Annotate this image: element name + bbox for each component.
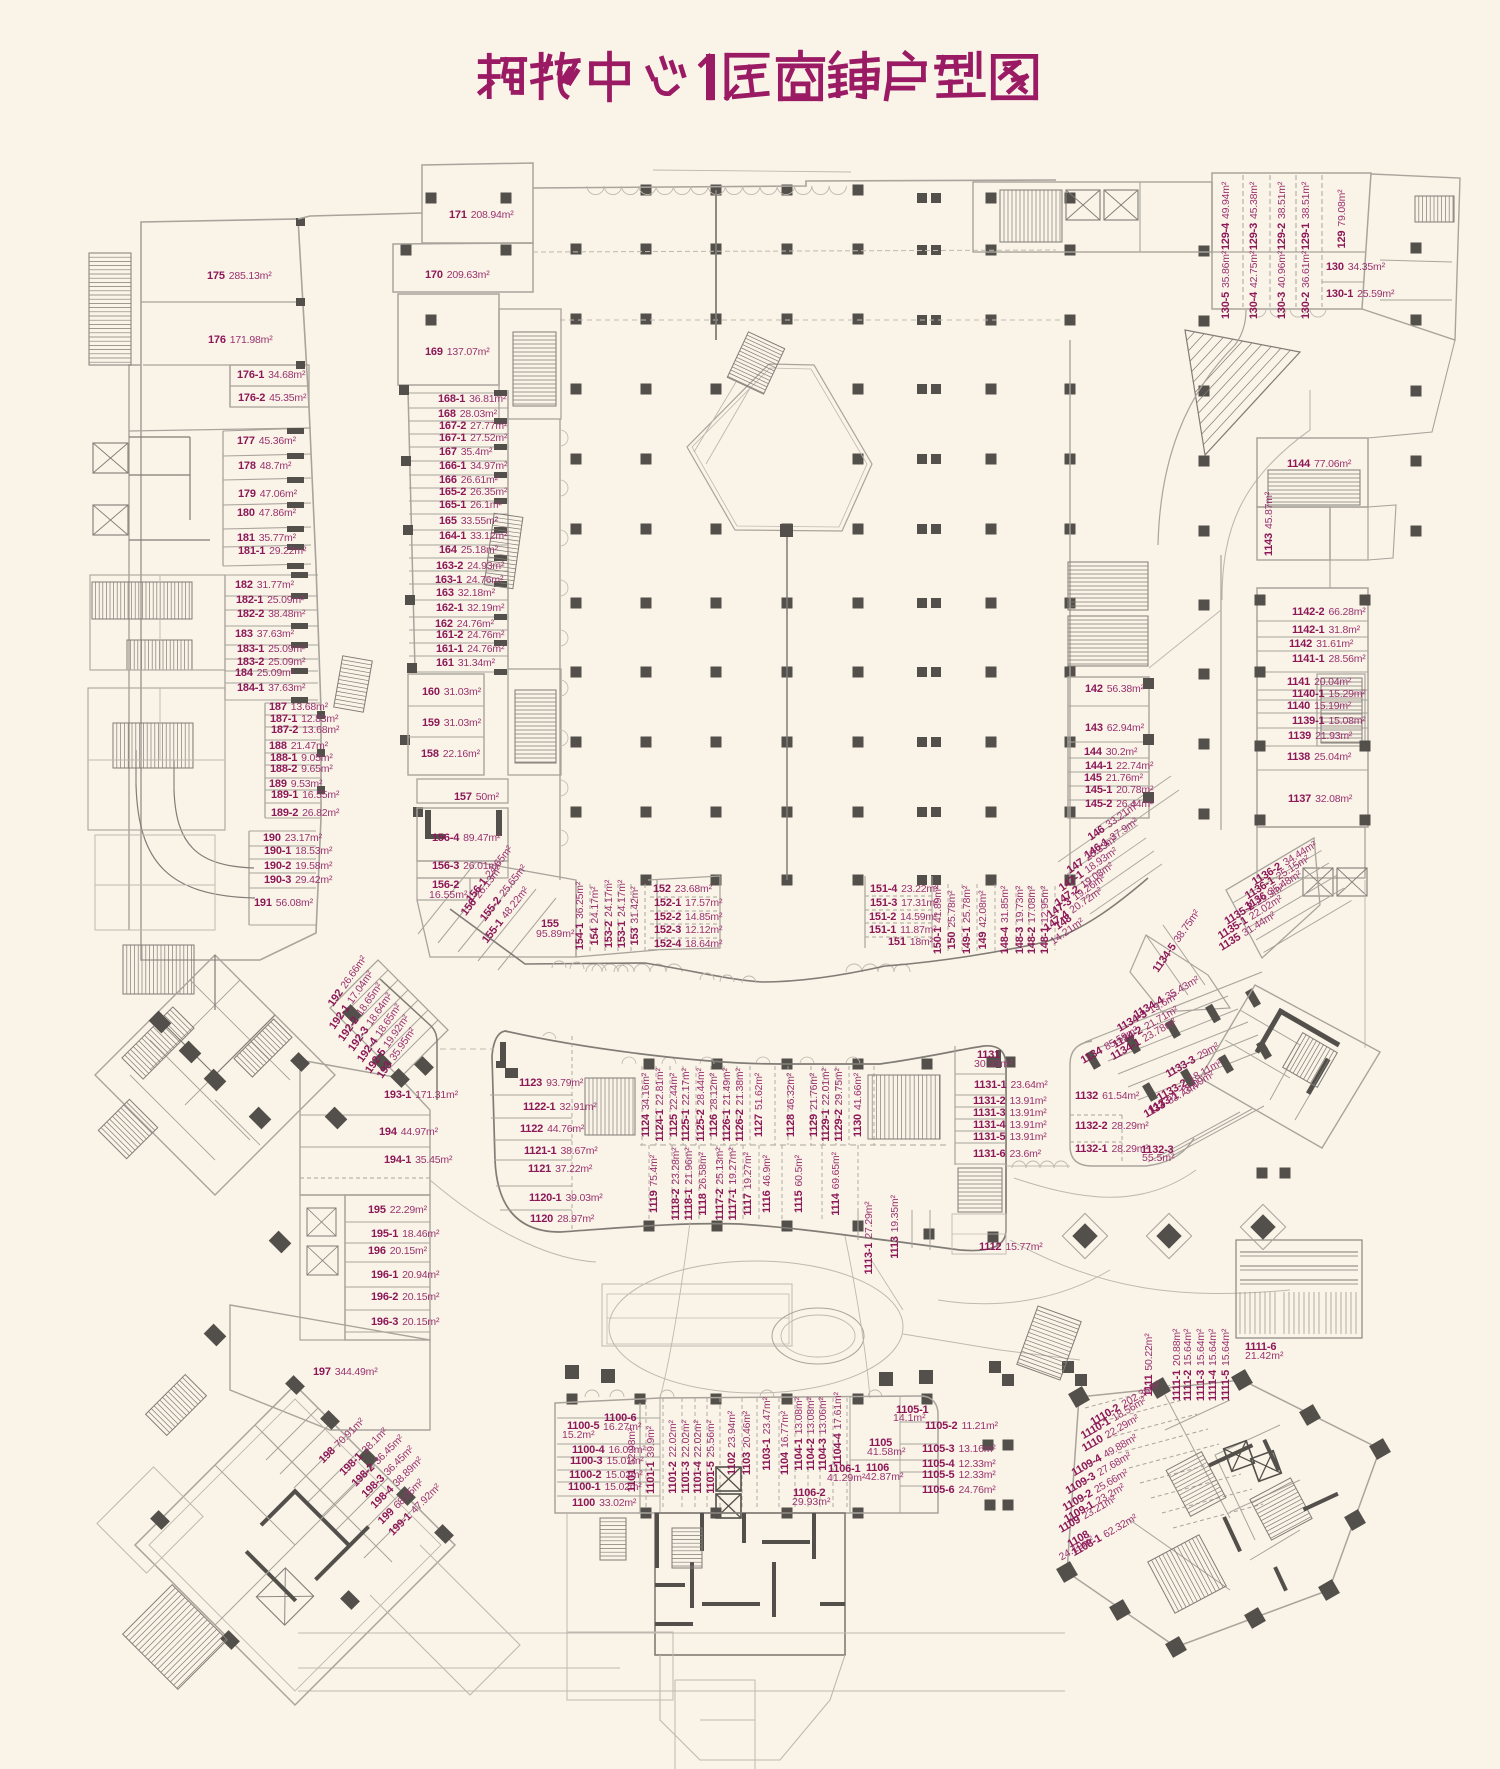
svg-text:176171.98m²: 176171.98m²	[208, 334, 273, 346]
svg-text:41.29m²: 41.29m²	[827, 1472, 866, 1484]
svg-text:1104-113.08m²: 1104-113.08m²	[793, 1397, 805, 1471]
svg-text:189-226.82m²: 189-226.82m²	[271, 807, 340, 819]
svg-text:113041.66m²: 113041.66m²	[852, 1072, 864, 1137]
svg-text:165-126.1m²: 165-126.1m²	[439, 499, 502, 511]
svg-text:1117-225.13m²: 1117-225.13m²	[714, 1147, 726, 1221]
svg-text:1101-525.56m²: 1101-525.56m²	[705, 1420, 717, 1494]
svg-text:110223.94m²: 110223.94m²	[726, 1410, 738, 1475]
svg-text:18821.47m²: 18821.47m²	[269, 740, 329, 752]
svg-text:19620.15m²: 19620.15m²	[368, 1245, 428, 1257]
svg-text:181-129.22m²: 181-129.22m²	[238, 545, 307, 557]
svg-text:110152.98m²: 110152.98m²	[626, 1427, 638, 1492]
svg-text:168-136.81m²: 168-136.81m²	[438, 393, 507, 405]
svg-text:163-224.93m²: 163-224.93m²	[436, 560, 505, 572]
svg-text:196-120.94m²: 196-120.94m²	[371, 1269, 440, 1281]
svg-text:1125-228.44m²: 1125-228.44m²	[695, 1068, 707, 1142]
svg-text:18337.63m²: 18337.63m²	[235, 628, 295, 640]
svg-text:167-127.52m²: 167-127.52m²	[439, 432, 508, 444]
svg-text:111646.9m²: 111646.9m²	[761, 1154, 773, 1213]
svg-text:149-125.78m²: 149-125.78m²	[961, 885, 973, 954]
svg-text:190-118.53m²: 190-118.53m²	[264, 845, 333, 857]
svg-text:112522.44m²: 112522.44m²	[668, 1072, 680, 1137]
svg-text:14942.08m²: 14942.08m²	[977, 890, 989, 950]
svg-text:111975.4m²: 111975.4m²	[648, 1154, 660, 1213]
svg-text:14430.2m²: 14430.2m²	[1084, 746, 1138, 758]
svg-text:112434.16m²: 112434.16m²	[640, 1072, 652, 1137]
svg-text:1101-322.02m²: 1101-322.02m²	[680, 1420, 692, 1494]
svg-text:184-137.63m²: 184-137.63m²	[237, 682, 306, 694]
svg-text:41.58m²: 41.58m²	[867, 1446, 906, 1458]
svg-text:175285.13m²: 175285.13m²	[207, 270, 272, 282]
svg-text:169137.07m²: 169137.07m²	[425, 346, 490, 358]
svg-text:14362.94m²: 14362.94m²	[1085, 722, 1145, 734]
svg-text:1118-223.28m²: 1118-223.28m²	[670, 1147, 682, 1221]
svg-text:1118-121.96m²: 1118-121.96m²	[683, 1147, 695, 1221]
svg-text:190-329.42m²: 190-329.42m²	[264, 874, 333, 886]
svg-text:114345.87m²: 114345.87m²	[1263, 491, 1275, 556]
svg-text:1105-512.33m²: 1105-512.33m²	[922, 1469, 996, 1481]
svg-text:196-320.15m²: 196-320.15m²	[371, 1316, 440, 1328]
svg-text:148-217.08m²: 148-217.08m²	[1026, 885, 1038, 954]
svg-text:15424.17m²: 15424.17m²	[589, 886, 601, 946]
svg-text:183-125.09m²: 183-125.09m²	[237, 643, 306, 655]
svg-text:130-125.59m²: 130-125.59m²	[1326, 288, 1395, 300]
svg-text:144-122.74m²: 144-122.74m²	[1085, 760, 1154, 772]
svg-text:130-442.75m²: 130-442.75m²	[1248, 250, 1260, 319]
svg-text:15331.42m²: 15331.42m²	[629, 886, 641, 946]
svg-text:165-226.35m²: 165-226.35m²	[439, 486, 508, 498]
svg-text:194-135.45m²: 194-135.45m²	[384, 1154, 453, 1166]
svg-text:95.89m²: 95.89m²	[536, 928, 575, 940]
svg-text:152-214.85m²: 152-214.85m²	[654, 911, 723, 923]
svg-text:176-245.35m²: 176-245.35m²	[238, 392, 307, 404]
svg-text:13034.35m²: 13034.35m²	[1326, 261, 1386, 273]
svg-text:152-312.12m²: 152-312.12m²	[654, 924, 723, 936]
svg-text:19444.97m²: 19444.97m²	[379, 1126, 439, 1138]
svg-text:1113-127.29m²: 1113-127.29m²	[863, 1201, 875, 1275]
svg-text:129-345.38m²: 129-345.38m²	[1248, 181, 1260, 250]
svg-text:151-214.59m²: 151-214.59m²	[869, 911, 938, 923]
svg-text:1104-313.06m²: 1104-313.06m²	[817, 1397, 829, 1471]
svg-text:14.1m²: 14.1m²	[893, 1412, 926, 1424]
svg-text:1111-415.64m²: 1111-415.64m²	[1207, 1328, 1219, 1401]
svg-text:110320.46m²: 110320.46m²	[741, 1410, 753, 1475]
svg-text:145-120.78m²: 145-120.78m²	[1085, 784, 1154, 796]
svg-text:1121-138.67m²: 1121-138.67m²	[524, 1145, 598, 1157]
svg-text:15931.03m²: 15931.03m²	[422, 717, 482, 729]
svg-text:1101-422.02m²: 1101-422.02m²	[692, 1420, 704, 1494]
svg-text:18425.09m²: 18425.09m²	[235, 667, 295, 679]
svg-text:196-220.15m²: 196-220.15m²	[371, 1291, 440, 1303]
svg-text:151-111.87m²: 151-111.87m²	[869, 924, 937, 936]
svg-text:15223.68m²: 15223.68m²	[653, 883, 713, 895]
svg-text:30.93m²: 30.93m²	[974, 1058, 1013, 1070]
svg-text:151-423.22m²: 151-423.22m²	[870, 883, 939, 895]
svg-text:18713.68m²: 18713.68m²	[269, 701, 329, 713]
svg-text:1131-313.91m²: 1131-313.91m²	[973, 1107, 1047, 1119]
svg-text:19522.29m²: 19522.29m²	[368, 1204, 428, 1216]
svg-text:1117-119.27m²: 1117-119.27m²	[727, 1147, 739, 1221]
svg-text:111469.65m²: 111469.65m²	[830, 1152, 842, 1216]
svg-text:18047.86m²: 18047.86m²	[237, 507, 297, 519]
svg-text:129-138.51m²: 129-138.51m²	[1300, 181, 1312, 250]
svg-text:1140-115.29m²: 1140-115.29m²	[1292, 688, 1366, 700]
svg-text:1105-624.76m²: 1105-624.76m²	[922, 1484, 996, 1496]
svg-text:1132-228.29m²: 1132-228.29m²	[1075, 1120, 1149, 1132]
svg-text:42.87m²: 42.87m²	[865, 1471, 904, 1483]
svg-text:154-136.25m²: 154-136.25m²	[574, 881, 586, 950]
svg-text:113825.04m²: 113825.04m²	[1287, 751, 1352, 763]
svg-text:19023.17m²: 19023.17m²	[263, 832, 323, 844]
svg-text:113921.93m²: 113921.93m²	[1288, 730, 1353, 742]
svg-text:112028.97m²: 112028.97m²	[530, 1213, 595, 1225]
svg-text:14521.76m²: 14521.76m²	[1084, 772, 1144, 784]
svg-text:111215.77m²: 111215.77m²	[979, 1241, 1043, 1253]
svg-text:189-116.55m²: 189-116.55m²	[271, 789, 340, 801]
svg-text:18135.77m²: 18135.77m²	[237, 532, 297, 544]
svg-text:16735.4m²: 16735.4m²	[439, 446, 493, 458]
svg-text:16031.03m²: 16031.03m²	[422, 686, 482, 698]
svg-text:1122-132.91m²: 1122-132.91m²	[523, 1101, 597, 1113]
svg-text:1131-513.91m²: 1131-513.91m²	[973, 1131, 1047, 1143]
svg-text:1111-515.64m²: 1111-515.64m²	[1220, 1328, 1232, 1401]
svg-text:161-224.76m²: 161-224.76m²	[436, 629, 505, 641]
svg-text:17848.7m²: 17848.7m²	[238, 460, 292, 472]
svg-text:1103-123.47m²: 1103-123.47m²	[761, 1397, 773, 1471]
svg-text:15.2m²: 15.2m²	[562, 1429, 595, 1441]
svg-text:110033.02m²: 110033.02m²	[572, 1497, 637, 1509]
svg-text:195-118.46m²: 195-118.46m²	[371, 1228, 440, 1240]
svg-text:16626.61m²: 16626.61m²	[439, 474, 499, 486]
svg-text:112921.76m²: 112921.76m²	[808, 1072, 820, 1137]
svg-text:1125-122.17m²: 1125-122.17m²	[680, 1068, 692, 1142]
svg-text:176-134.68m²: 176-134.68m²	[237, 369, 306, 381]
svg-text:1111-215.64m²: 1111-215.64m²	[1182, 1328, 1194, 1401]
svg-text:1104-213.08m²: 1104-213.08m²	[805, 1397, 817, 1471]
svg-text:193-1171.31m²: 193-1171.31m²	[384, 1089, 459, 1101]
svg-text:55.5m²: 55.5m²	[1142, 1152, 1175, 1164]
svg-text:167-227.77m²: 167-227.77m²	[439, 420, 508, 432]
svg-text:1129-229.75m²: 1129-229.75m²	[833, 1068, 845, 1142]
svg-text:114231.61m²: 114231.61m²	[1289, 638, 1354, 650]
svg-text:148-319.73m²: 148-319.73m²	[1014, 885, 1026, 954]
svg-text:111719.27m²: 111719.27m²	[742, 1152, 754, 1216]
svg-text:16828.03m²: 16828.03m²	[438, 408, 498, 420]
svg-text:1139-115.08m²: 1139-115.08m²	[1292, 715, 1366, 727]
svg-text:197344.49m²: 197344.49m²	[313, 1366, 378, 1378]
svg-text:182-238.48m²: 182-238.48m²	[237, 608, 306, 620]
svg-text:1120-139.03m²: 1120-139.03m²	[529, 1192, 603, 1204]
svg-text:19156.08m²: 19156.08m²	[254, 897, 314, 909]
svg-text:170209.63m²: 170209.63m²	[425, 269, 490, 281]
svg-text:15025.78m²: 15025.78m²	[946, 890, 958, 950]
svg-text:1126-221.38m²: 1126-221.38m²	[734, 1068, 746, 1142]
svg-text:148-431.85m²: 148-431.85m²	[999, 885, 1011, 954]
svg-text:113261.54m²: 113261.54m²	[1075, 1090, 1140, 1102]
svg-text:129-238.51m²: 129-238.51m²	[1276, 181, 1288, 250]
svg-text:130-535.86m²: 130-535.86m²	[1220, 250, 1232, 319]
svg-text:16533.55m²: 16533.55m²	[439, 515, 499, 527]
svg-text:114015.19m²: 114015.19m²	[1287, 700, 1352, 712]
svg-text:153-224.17m²: 153-224.17m²	[603, 879, 615, 948]
svg-text:112751.62m²: 112751.62m²	[753, 1072, 765, 1137]
svg-text:171208.94m²: 171208.94m²	[449, 209, 514, 221]
svg-text:16131.34m²: 16131.34m²	[436, 657, 496, 669]
svg-text:12979.08m²: 12979.08m²	[1336, 189, 1348, 249]
svg-text:145-226.44m²: 145-226.44m²	[1085, 798, 1154, 810]
svg-text:190-219.58m²: 190-219.58m²	[264, 860, 333, 872]
svg-text:188-29.65m²: 188-29.65m²	[270, 763, 333, 775]
svg-text:152-117.57m²: 152-117.57m²	[654, 897, 723, 909]
svg-text:111319.35m²: 111319.35m²	[889, 1195, 901, 1259]
svg-text:164-133.12m²: 164-133.12m²	[439, 530, 508, 542]
svg-text:111826.58m²: 111826.58m²	[697, 1152, 709, 1216]
svg-text:110416.77m²: 110416.77m²	[779, 1410, 791, 1475]
svg-text:14256.38m²: 14256.38m²	[1085, 683, 1145, 695]
svg-text:16332.18m²: 16332.18m²	[436, 587, 496, 599]
svg-text:112137.22m²: 112137.22m²	[528, 1163, 593, 1175]
svg-text:16.55m²: 16.55m²	[429, 889, 468, 901]
svg-text:150-141.89m²: 150-141.89m²	[932, 885, 944, 954]
svg-text:1131-213.91m²: 1131-213.91m²	[973, 1095, 1047, 1107]
svg-text:1141-128.56m²: 1141-128.56m²	[1292, 653, 1366, 665]
svg-text:21.42m²: 21.42m²	[1245, 1350, 1284, 1362]
svg-text:166-134.97m²: 166-134.97m²	[439, 460, 508, 472]
svg-text:156-489.47m²: 156-489.47m²	[432, 832, 501, 844]
svg-text:111560.5m²: 111560.5m²	[793, 1154, 805, 1213]
svg-text:16425.18m²: 16425.18m²	[439, 544, 499, 556]
svg-text:17947.06m²: 17947.06m²	[238, 488, 298, 500]
svg-text:162-132.19m²: 162-132.19m²	[436, 602, 505, 614]
svg-text:130-340.96m²: 130-340.96m²	[1276, 250, 1288, 319]
svg-text:1105-211.21m²: 1105-211.21m²	[925, 1420, 998, 1432]
svg-text:1124-122.81m²: 1124-122.81m²	[654, 1068, 666, 1142]
svg-text:1129-122.01m²: 1129-122.01m²	[820, 1068, 832, 1142]
svg-text:112393.79m²: 112393.79m²	[519, 1077, 584, 1089]
svg-text:15118m²: 15118m²	[888, 936, 934, 948]
svg-text:1142-266.28m²: 1142-266.28m²	[1292, 606, 1366, 618]
svg-text:112244.76m²: 112244.76m²	[520, 1123, 585, 1135]
svg-text:1132-128.29m²: 1132-128.29m²	[1075, 1143, 1149, 1155]
svg-text:187-213.68m²: 187-213.68m²	[271, 724, 340, 736]
svg-text:161-124.76m²: 161-124.76m²	[436, 643, 505, 655]
svg-text:1126-121.49m²: 1126-121.49m²	[721, 1068, 733, 1142]
svg-text:1131-413.91m²: 1131-413.91m²	[973, 1119, 1047, 1131]
svg-text:1101-222.02m²: 1101-222.02m²	[667, 1420, 679, 1494]
svg-text:152-418.64m²: 152-418.64m²	[654, 938, 723, 950]
svg-text:114477.06m²: 114477.06m²	[1287, 458, 1352, 470]
svg-text:130-236.61m²: 130-236.61m²	[1300, 250, 1312, 319]
svg-text:1105-313.16m²: 1105-313.16m²	[922, 1443, 996, 1455]
svg-text:1131-123.64m²: 1131-123.64m²	[974, 1079, 1048, 1091]
svg-text:182-125.09m²: 182-125.09m²	[236, 594, 305, 606]
svg-text:17745.36m²: 17745.36m²	[237, 435, 297, 447]
svg-text:113732.08m²: 113732.08m²	[1288, 793, 1353, 805]
svg-text:163-124.76m²: 163-124.76m²	[435, 574, 504, 586]
svg-text:114120.04m²: 114120.04m²	[1287, 676, 1352, 688]
svg-text:129-449.94m²: 129-449.94m²	[1220, 181, 1232, 250]
svg-text:112846.32m²: 112846.32m²	[785, 1072, 797, 1137]
svg-text:112628.12m²: 112628.12m²	[708, 1072, 720, 1137]
svg-text:153-124.17m²: 153-124.17m²	[616, 879, 628, 948]
svg-text:151-317.31m²: 151-317.31m²	[870, 897, 939, 909]
svg-text:15750m²: 15750m²	[454, 791, 500, 803]
svg-text:1104-417.61m²: 1104-417.61m²	[832, 1392, 844, 1466]
svg-text:18231.77m²: 18231.77m²	[235, 579, 295, 591]
svg-text:29.93m²: 29.93m²	[792, 1496, 831, 1508]
svg-text:15822.16m²: 15822.16m²	[421, 748, 481, 760]
svg-text:1111-315.64m²: 1111-315.64m²	[1195, 1328, 1207, 1401]
